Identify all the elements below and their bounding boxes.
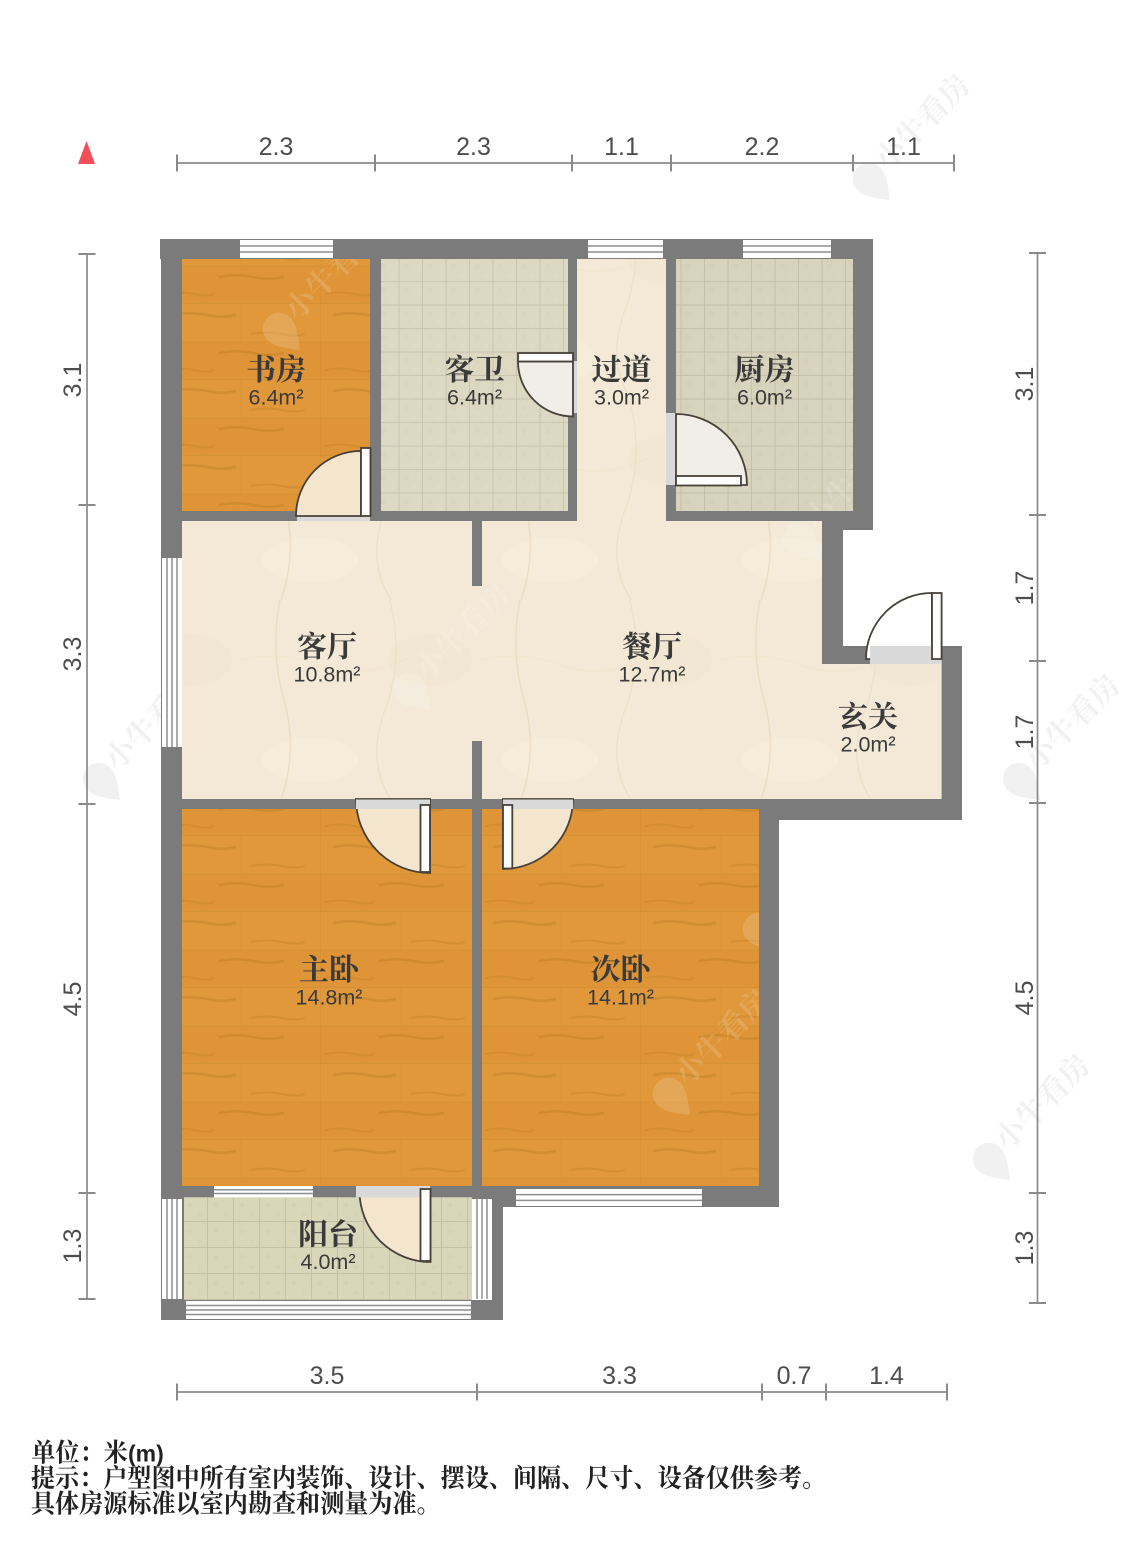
- svg-text:10.8m²: 10.8m²: [294, 663, 361, 687]
- svg-text:3.0m²: 3.0m²: [594, 386, 649, 410]
- svg-text:14.8m²: 14.8m²: [296, 986, 363, 1010]
- svg-text:3.5: 3.5: [310, 1362, 345, 1390]
- svg-text:3.3: 3.3: [59, 637, 87, 672]
- svg-text:(m): (m): [128, 1441, 164, 1467]
- svg-text:2.3: 2.3: [456, 133, 491, 161]
- svg-text:2.3: 2.3: [259, 133, 294, 161]
- svg-text:3.1: 3.1: [59, 363, 87, 398]
- svg-text:1.4: 1.4: [869, 1362, 904, 1390]
- svg-text:1.1: 1.1: [604, 133, 639, 161]
- svg-text:1.7: 1.7: [1011, 715, 1039, 750]
- svg-text:4.5: 4.5: [59, 982, 87, 1017]
- svg-text:12.7m²: 12.7m²: [619, 663, 686, 687]
- svg-text:2.2: 2.2: [745, 133, 780, 161]
- svg-text:1.3: 1.3: [1011, 1231, 1039, 1266]
- svg-text:0.7: 0.7: [777, 1362, 812, 1390]
- svg-text:2.0m²: 2.0m²: [841, 733, 896, 757]
- svg-text:3.1: 3.1: [1011, 367, 1039, 402]
- svg-text:1.1: 1.1: [886, 133, 921, 161]
- svg-text:6.4m²: 6.4m²: [249, 386, 304, 410]
- svg-text:4.5: 4.5: [1011, 981, 1039, 1016]
- svg-text:1.3: 1.3: [59, 1229, 87, 1264]
- svg-text:1.7: 1.7: [1011, 571, 1039, 606]
- svg-text:6.4m²: 6.4m²: [447, 386, 502, 410]
- svg-text:14.1m²: 14.1m²: [587, 986, 654, 1010]
- svg-text:4.0m²: 4.0m²: [301, 1250, 356, 1274]
- svg-text:3.3: 3.3: [602, 1362, 637, 1390]
- svg-text:6.0m²: 6.0m²: [737, 386, 792, 410]
